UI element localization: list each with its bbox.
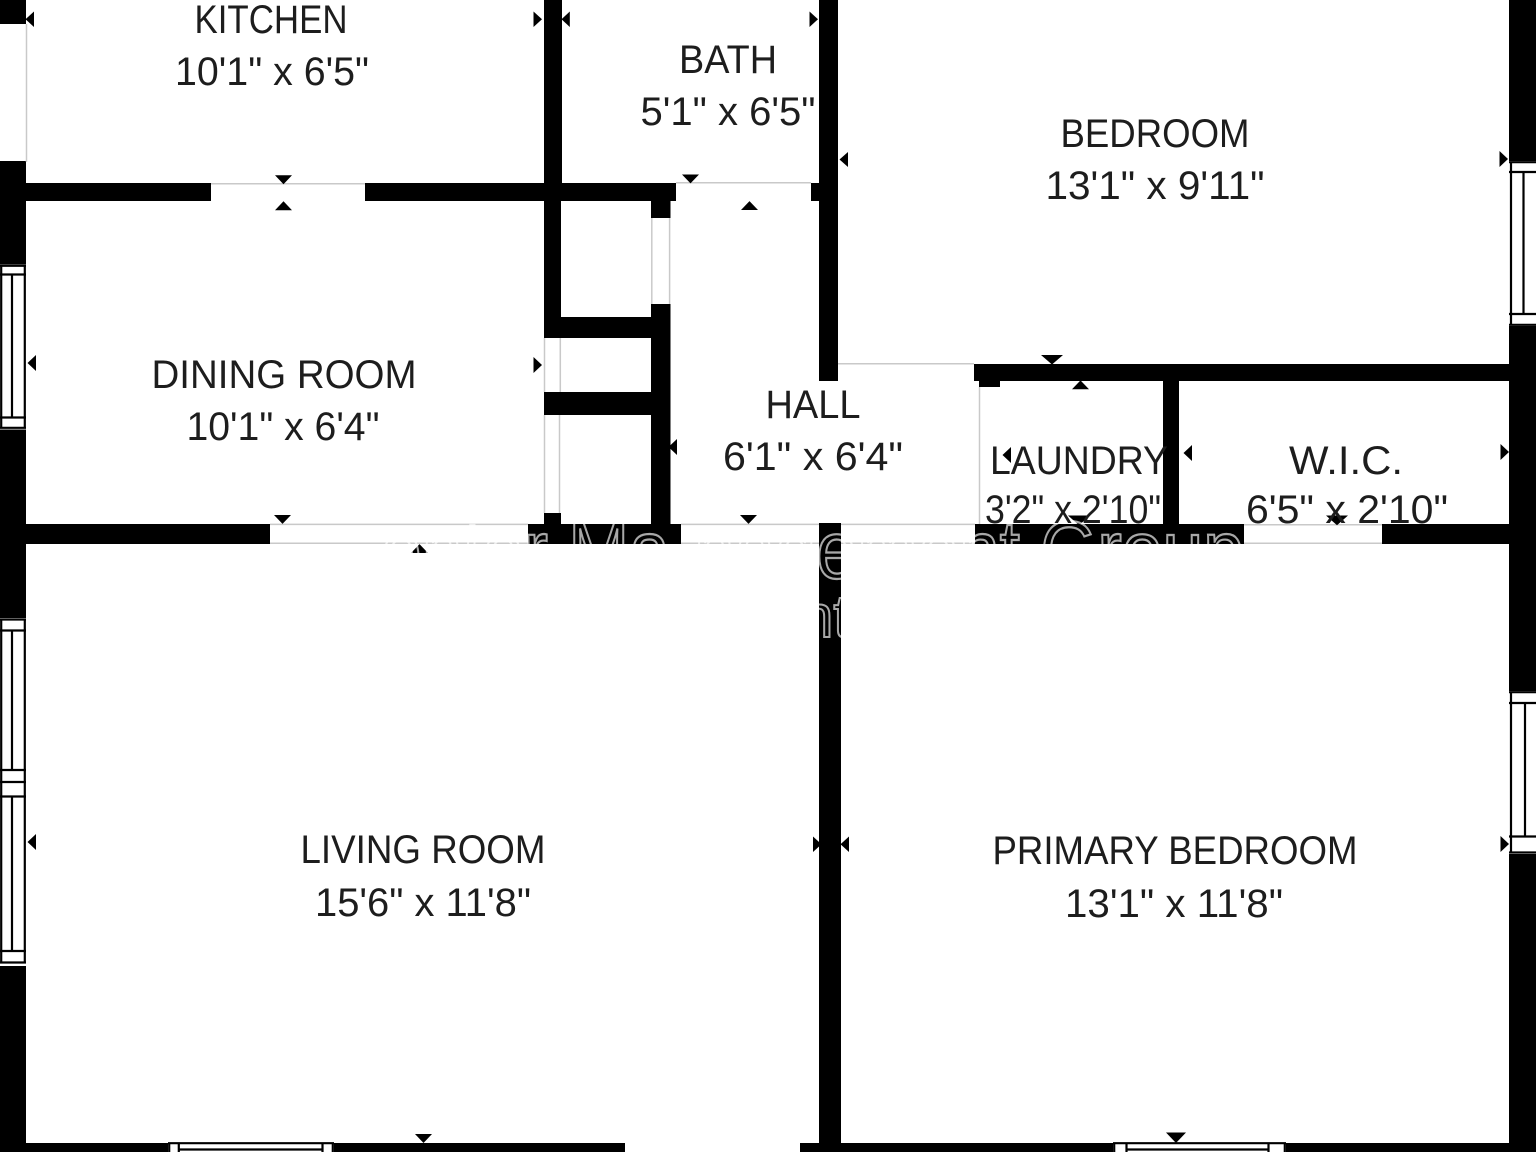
svg-text:HALL: HALL	[766, 383, 861, 427]
svg-text:6'5" x 2'10": 6'5" x 2'10"	[1246, 488, 1448, 532]
svg-text:DINING ROOM: DINING ROOM	[152, 353, 417, 397]
svg-text:PRIMARY BEDROOM: PRIMARY BEDROOM	[993, 829, 1358, 873]
svg-text:3'2" x 2'10": 3'2" x 2'10"	[985, 488, 1161, 532]
svg-text:LAUNDRY: LAUNDRY	[990, 439, 1168, 483]
svg-text:13'1" x 9'11": 13'1" x 9'11"	[1046, 164, 1265, 208]
svg-text:13'1" x 11'8": 13'1" x 11'8"	[1065, 882, 1283, 926]
svg-text:10'1" x 6'5": 10'1" x 6'5"	[175, 50, 369, 94]
svg-text:KITCHEN: KITCHEN	[195, 0, 348, 42]
svg-text:BATH: BATH	[679, 38, 777, 82]
svg-text:BEDROOM: BEDROOM	[1061, 112, 1250, 156]
svg-text:LIVING ROOM: LIVING ROOM	[301, 828, 546, 872]
svg-text:10'1" x 6'4": 10'1" x 6'4"	[187, 405, 380, 449]
svg-text:15'6" x 11'8": 15'6" x 11'8"	[315, 881, 531, 925]
svg-text:5'1" x 6'5": 5'1" x 6'5"	[641, 90, 816, 134]
svg-text:nt: nt	[800, 583, 850, 650]
svg-text:6'1" x 6'4": 6'1" x 6'4"	[723, 435, 903, 479]
svg-text:enter Ma: enter Ma	[381, 505, 670, 596]
svg-text:W.I.C.: W.I.C.	[1289, 439, 1403, 483]
svg-text:nagement Group: nagement Group	[694, 505, 1244, 596]
